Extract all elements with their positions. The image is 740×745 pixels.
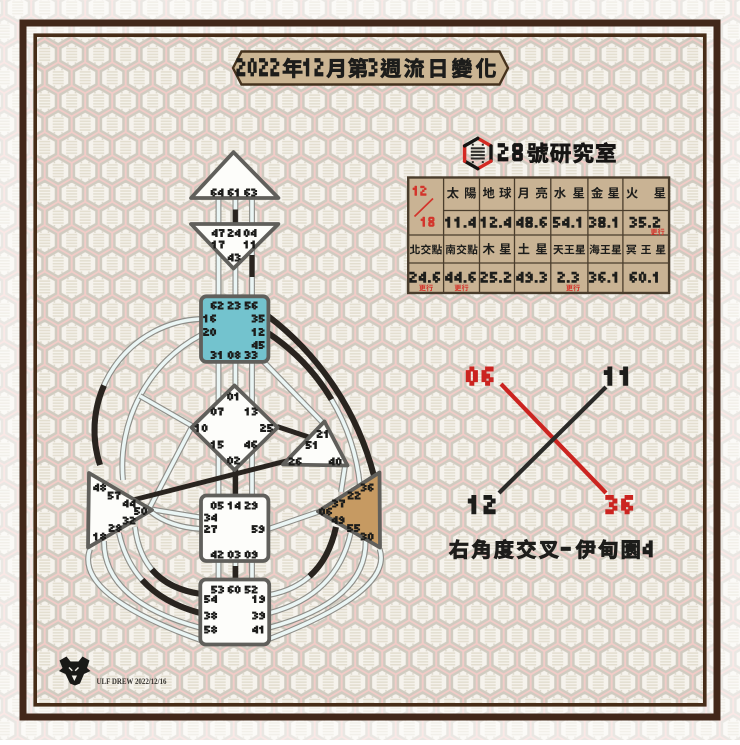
svg-text:ULF DREW 2022/12/16: ULF DREW 2022/12/16 [97,676,168,686]
